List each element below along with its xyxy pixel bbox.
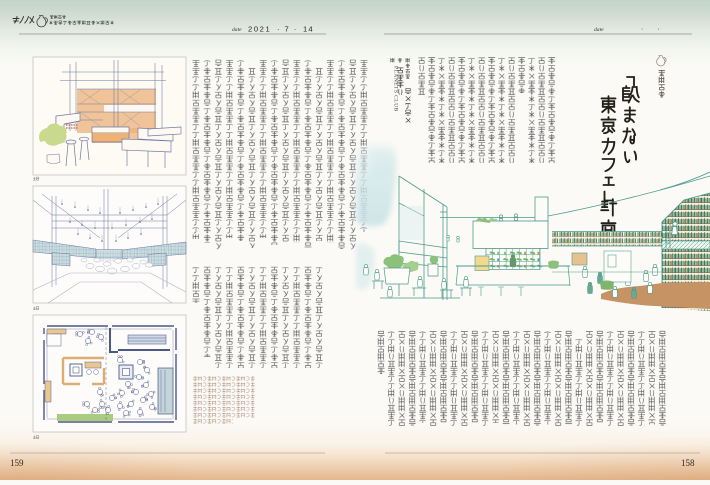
- svg-text:date: date: [594, 27, 604, 33]
- svg-text:date: date: [232, 27, 242, 33]
- svg-text:2021: 2021: [248, 24, 271, 33]
- svg-text:·7·: ·7·: [277, 24, 301, 33]
- svg-text:··: ··: [641, 26, 674, 33]
- svg-text:14: 14: [303, 24, 314, 33]
- svg-text:158: 158: [681, 458, 695, 468]
- svg-text:PLANETS CLUB: PLANETS CLUB: [393, 66, 399, 112]
- svg-text:159: 159: [10, 458, 24, 468]
